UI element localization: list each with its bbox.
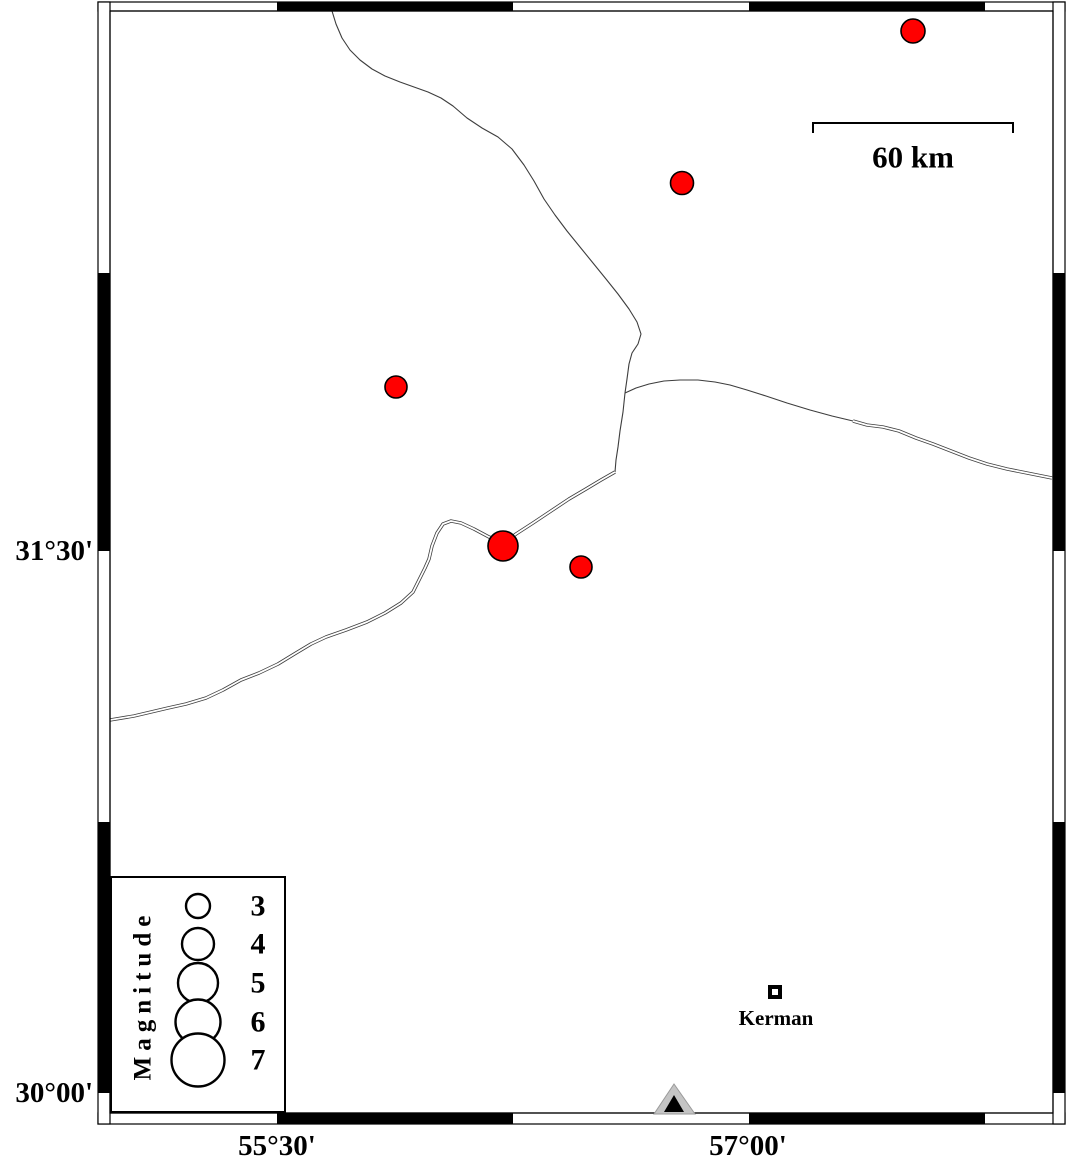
frame-tick-segment-left xyxy=(98,822,110,1093)
legend-magnitude-circle xyxy=(172,1034,225,1087)
latitude-label: 30°00' xyxy=(15,1077,93,1109)
legend-magnitude-label: 6 xyxy=(251,1006,266,1039)
legend-magnitude-label: 5 xyxy=(251,967,266,1000)
city-marker-square-inner xyxy=(772,989,778,995)
frame-tick-segment-bottom xyxy=(277,1113,513,1124)
frame-tick-segment-left xyxy=(98,273,110,551)
legend-title: Magnitude xyxy=(130,910,157,1081)
city-label: Kerman xyxy=(739,1006,814,1030)
earthquake-marker xyxy=(385,376,407,398)
latitude-label: 31°30' xyxy=(15,535,93,567)
earthquake-marker xyxy=(901,19,925,43)
legend-magnitude-circle xyxy=(178,963,218,1003)
earthquake-marker xyxy=(488,531,518,561)
legend-magnitude-label: 7 xyxy=(251,1044,266,1077)
map-canvas: 60 kmMagnitude34567Kerman31°30'30°00'55°… xyxy=(0,0,1066,1162)
legend-magnitude-circle xyxy=(182,928,214,960)
frame-tick-segment-top xyxy=(277,2,513,11)
earthquake-marker xyxy=(570,556,592,578)
earthquake-marker xyxy=(671,172,694,195)
legend-magnitude-label: 4 xyxy=(251,928,266,961)
scalebar-label: 60 km xyxy=(872,140,954,175)
seismicity-map-figure: 60 kmMagnitude34567Kerman31°30'30°00'55°… xyxy=(0,0,1066,1162)
frame-tick-segment-right xyxy=(1053,822,1065,1093)
frame-tick-segment-right xyxy=(1053,273,1065,551)
legend-magnitude-circle xyxy=(186,894,210,918)
legend-magnitude-label: 3 xyxy=(251,890,266,923)
longitude-label: 55°30' xyxy=(238,1130,316,1162)
frame-tick-segment-top xyxy=(749,2,985,11)
frame-tick-segment-bottom xyxy=(749,1113,985,1124)
longitude-label: 57°00' xyxy=(709,1130,787,1162)
